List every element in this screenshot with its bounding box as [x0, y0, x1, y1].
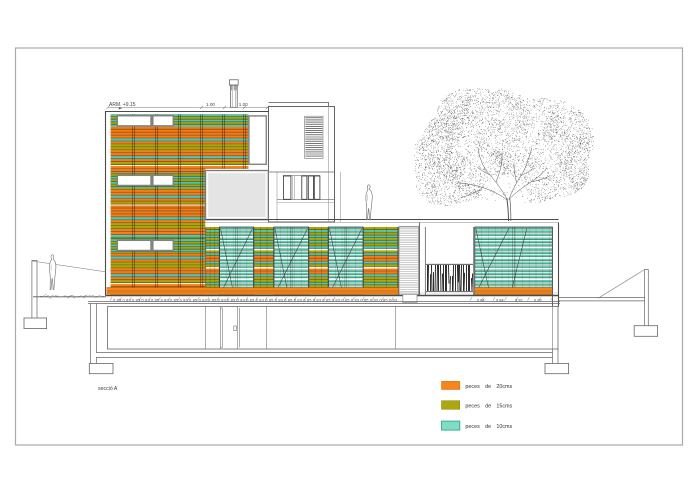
svg-text:1.00: 1.00 — [239, 102, 248, 107]
svg-text:peces de 10cms: peces de 10cms — [465, 424, 512, 430]
svg-text:1.00: 1.00 — [206, 102, 215, 107]
svg-text:secció A: secció A — [98, 386, 118, 392]
svg-text:peces de 20cms: peces de 20cms — [465, 384, 512, 390]
svg-text:peces de 15cms: peces de 15cms — [465, 404, 512, 410]
svg-text:ARM. +9.15: ARM. +9.15 — [109, 102, 136, 108]
